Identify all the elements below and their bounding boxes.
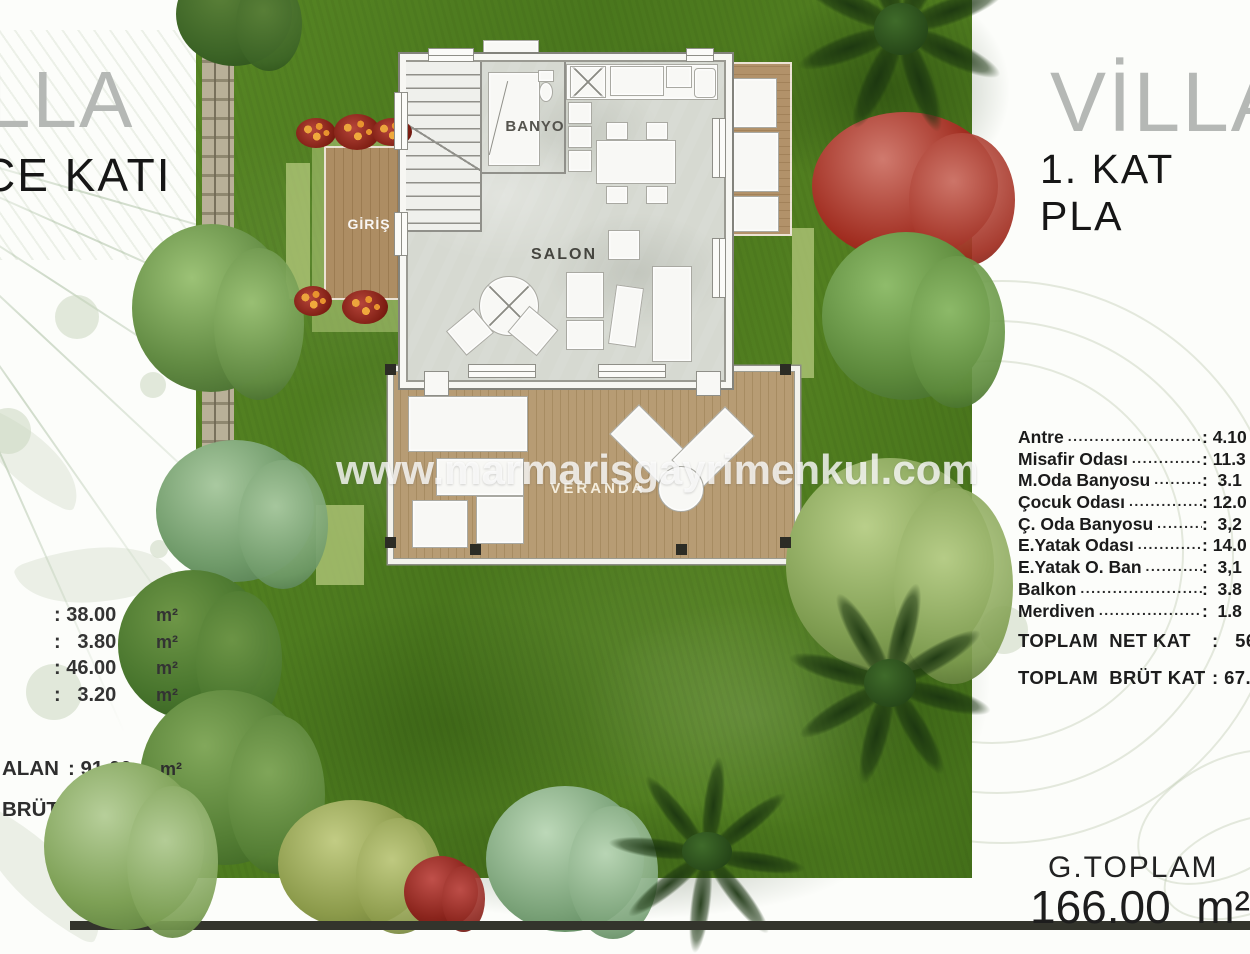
dot-leader: ................ xyxy=(1132,450,1202,466)
room-row: Balkon .......................... : 3.8 xyxy=(1018,579,1250,601)
room-value: : 3,1 xyxy=(1202,557,1250,578)
corner-marker xyxy=(676,544,687,555)
cabinet xyxy=(568,150,592,172)
total-value: : 56. xyxy=(1212,630,1250,652)
right-title: VİLLA xyxy=(1050,54,1250,151)
palm-tree xyxy=(796,0,1006,130)
grand-total-value: 166.00 m² xyxy=(1030,880,1250,934)
total-value: : 67.9 xyxy=(1212,667,1250,689)
summary-label: ALAN xyxy=(2,757,68,781)
armchair xyxy=(566,272,604,318)
room-row: Misafir Odası ................ : 11.3 xyxy=(1018,449,1250,471)
room-value: : 1.8 xyxy=(1202,601,1250,622)
room-value: : 3.1 xyxy=(1202,470,1250,491)
dot-ornament xyxy=(55,295,99,339)
area-unit: m² xyxy=(156,605,178,626)
flower-bush xyxy=(342,290,388,324)
dining-chair xyxy=(606,186,628,204)
room-label: E.Yatak Odası xyxy=(1018,535,1134,556)
balcony-furniture xyxy=(733,196,779,232)
room-value: : 12.0 xyxy=(1202,492,1250,513)
area-row: : 3.20 m² xyxy=(54,684,178,711)
right-subtitle: 1. KAT PLA xyxy=(1040,146,1250,240)
flower-bush xyxy=(294,286,332,316)
counter-appliance xyxy=(666,66,692,88)
room-label: E.Yatak O. Ban xyxy=(1018,557,1142,578)
window xyxy=(686,48,714,62)
total-label: TOPLAM NET KAT xyxy=(1018,630,1212,652)
corner-marker xyxy=(780,537,791,548)
total-label: TOPLAM BRÜT KAT xyxy=(1018,667,1212,689)
room-label-giris: GİRİŞ xyxy=(330,216,408,232)
outdoor-chair xyxy=(412,500,468,548)
garden-path-strip xyxy=(792,228,814,378)
window xyxy=(468,364,536,378)
dot-leader: .......... xyxy=(1157,515,1202,531)
room-label: Merdiven xyxy=(1018,601,1095,622)
room-row: E.Yatak Odası ............ : 14.0 xyxy=(1018,535,1250,557)
area-value: : 46.00 xyxy=(54,657,140,680)
area-unit: m² xyxy=(156,685,178,706)
room-row: Çocuk Odası ................ : 12.0 xyxy=(1018,492,1250,514)
room-value: : 11.3 xyxy=(1202,449,1250,470)
tree xyxy=(132,224,290,392)
total-brut-row: TOPLAM BRÜT KAT : 67.9 xyxy=(1018,667,1250,689)
room-label-salon: SALON xyxy=(518,246,610,264)
dot-leader: ............................ xyxy=(1068,428,1202,444)
dining-chair xyxy=(606,122,628,140)
dining-chair xyxy=(646,186,668,204)
corner-marker xyxy=(470,544,481,555)
palm-core xyxy=(864,659,916,707)
area-row: : 3.80 m² xyxy=(54,631,178,658)
partition-wall xyxy=(480,62,482,174)
left-title-fragment: LLA xyxy=(0,54,134,146)
window xyxy=(428,48,474,62)
dot-leader: ................ xyxy=(1129,493,1202,509)
dot-leader: ...................... xyxy=(1099,602,1202,618)
room-row: M.Oda Banyosu ............ : 3.1 xyxy=(1018,470,1250,492)
room-value: : 3,2 xyxy=(1202,514,1250,535)
room-row: Antre ............................ : 4.1… xyxy=(1018,427,1250,449)
room-label: Ç. Oda Banyosu xyxy=(1018,514,1153,535)
corner-post xyxy=(424,371,449,396)
area-value: : 3.80 xyxy=(54,631,140,654)
area-row: : 38.00 m² xyxy=(54,604,178,631)
corner-marker xyxy=(385,537,396,548)
room-value: : 4.10 xyxy=(1202,427,1250,448)
red-bush xyxy=(404,856,478,928)
room-value: : 3.8 xyxy=(1202,579,1250,600)
corner-marker xyxy=(385,364,396,375)
palm-core xyxy=(874,3,929,55)
toilet-bowl xyxy=(539,82,553,102)
bush xyxy=(156,440,314,582)
outdoor-chair xyxy=(476,496,524,544)
sink xyxy=(694,68,716,98)
room-label-banyo: BANYO xyxy=(498,118,572,135)
room-label: Çocuk Odası xyxy=(1018,492,1125,513)
tree xyxy=(822,232,990,400)
partition-wall xyxy=(406,230,480,232)
room-label: M.Oda Banyosu xyxy=(1018,470,1150,491)
area-unit: m² xyxy=(156,632,178,653)
armchair xyxy=(566,320,604,350)
staircase xyxy=(406,62,482,232)
site-plan-page: { "watermark": { "text": "www.marmarisga… xyxy=(0,0,1250,930)
room-label: Antre xyxy=(1018,427,1064,448)
tree xyxy=(44,762,204,930)
counter-unit xyxy=(610,66,664,96)
balcony-furniture xyxy=(731,132,779,192)
room-row: Ç. Oda Banyosu .......... : 3,2 xyxy=(1018,514,1250,536)
room-label: Misafir Odası xyxy=(1018,449,1128,470)
area-value: : 3.20 xyxy=(54,684,140,707)
side-table xyxy=(608,230,640,260)
room-label: Balkon xyxy=(1018,579,1076,600)
dot-leader: ............ xyxy=(1154,471,1202,487)
partition-wall xyxy=(480,172,566,174)
sofa xyxy=(652,266,692,362)
outdoor-sofa xyxy=(408,396,528,452)
bush xyxy=(278,800,428,928)
area-unit: m² xyxy=(156,658,178,679)
dot-ornament xyxy=(140,372,166,398)
watermark-text: www.marmarisgayrimenkul.com xyxy=(336,446,979,494)
balcony-furniture xyxy=(733,78,777,128)
corner-post xyxy=(696,371,721,396)
left-subtitle-fragment: CE KATI xyxy=(0,148,172,202)
dot-leader: ............ xyxy=(1138,536,1202,552)
window xyxy=(712,238,726,298)
dot-leader: ............ xyxy=(1146,558,1202,574)
palm-tree xyxy=(612,782,802,932)
area-row: : 46.00 m² xyxy=(54,657,178,684)
dining-chair xyxy=(646,122,668,140)
flower-bush xyxy=(296,118,336,148)
dot-leader: .......................... xyxy=(1080,580,1202,596)
stove xyxy=(570,66,606,98)
total-net-row: TOPLAM NET KAT : 56. xyxy=(1018,630,1250,652)
window xyxy=(712,118,726,178)
toilet xyxy=(538,70,554,82)
room-area-list: Antre ............................ : 4.1… xyxy=(1018,427,1250,622)
window xyxy=(598,364,666,378)
left-area-list: : 38.00 m² : 3.80 m² : 46.00 m² : 3.20 m… xyxy=(54,604,178,710)
room-row: Merdiven ...................... : 1.8 xyxy=(1018,601,1250,623)
area-value: : 38.00 xyxy=(54,604,140,627)
room-value: : 14.0 xyxy=(1202,535,1250,556)
window xyxy=(394,92,408,150)
dining-table xyxy=(596,140,676,184)
corner-marker xyxy=(780,364,791,375)
totals-block: TOPLAM NET KAT : 56. TOPLAM BRÜT KAT : 6… xyxy=(1018,630,1250,704)
room-row: E.Yatak O. Ban ............ : 3,1 xyxy=(1018,557,1250,579)
palm-tree xyxy=(790,592,990,777)
palm-core xyxy=(682,832,731,871)
